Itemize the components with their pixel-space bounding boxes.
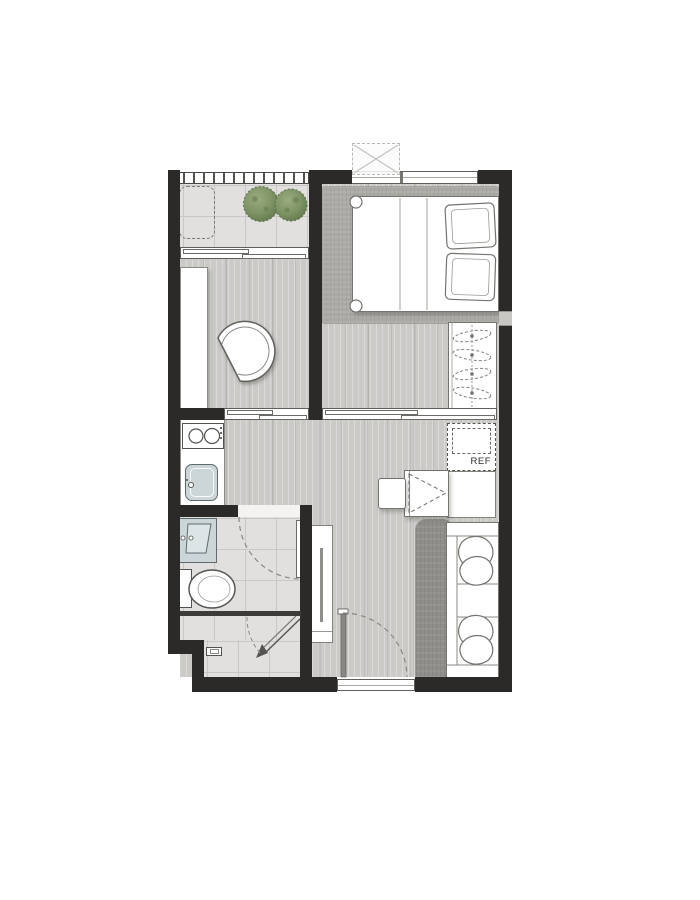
- exterior-wall-bottom-right: [415, 677, 512, 692]
- ac-condenser-unit: [352, 143, 400, 175]
- interior-wall-study-bottom: [168, 408, 224, 420]
- sink-basin: [190, 468, 214, 497]
- exterior-wall-right-lower: [499, 326, 512, 692]
- right-wall-ledge: [499, 311, 512, 326]
- refrigerator: REF: [447, 423, 496, 471]
- desk: [180, 267, 208, 411]
- wardrobe: [448, 322, 497, 409]
- shower-valve-inner: [210, 649, 219, 654]
- vanity-sink: [177, 518, 217, 563]
- window-midline: [351, 177, 477, 178]
- threshold-midline: [338, 685, 414, 686]
- study-sliding-door: [224, 408, 309, 420]
- entry-threshold: [337, 679, 415, 691]
- exterior-wall-left: [168, 170, 180, 644]
- sliding-panel: [401, 415, 495, 420]
- sliding-panel: [242, 254, 306, 259]
- cabinet-divider: [311, 631, 332, 632]
- counter-cabinet: [447, 471, 496, 518]
- shoe-cabinet: [310, 525, 333, 643]
- toilet-tank: [178, 569, 192, 608]
- exterior-wall-top-right: [478, 170, 512, 184]
- stove: [182, 423, 224, 449]
- floor-plan: REF: [0, 0, 700, 900]
- exterior-wall-bottom-left: [192, 677, 337, 692]
- exterior-wall-right-upper: [499, 170, 512, 311]
- interior-wall-bedroom-divider: [309, 170, 322, 420]
- sofa: [446, 522, 499, 680]
- refrigerator-label: REF: [471, 456, 492, 467]
- refrigerator-inner-outline: [452, 428, 491, 454]
- balcony-railing: [172, 172, 309, 184]
- balcony-bench: [179, 186, 215, 239]
- kitchen-sink: [185, 464, 218, 501]
- bed: [352, 196, 499, 312]
- interior-wall-kitchen-bath: [168, 505, 238, 517]
- shower-valve: [206, 647, 222, 656]
- shower-floor: [204, 640, 300, 677]
- shower-partition: [180, 611, 301, 616]
- stool: [378, 478, 406, 509]
- folding-table: [404, 470, 449, 517]
- bathroom-door-opening: [238, 505, 300, 517]
- sliding-panel: [259, 415, 307, 420]
- balcony-sliding-door: [180, 247, 309, 259]
- cabinet-handle: [320, 548, 323, 622]
- interior-wall-bathroom-right: [300, 505, 312, 677]
- bedroom-sliding-door: [322, 408, 497, 420]
- sliding-panel: [183, 249, 249, 254]
- window-divider: [400, 172, 403, 183]
- table-edge-line: [409, 471, 410, 516]
